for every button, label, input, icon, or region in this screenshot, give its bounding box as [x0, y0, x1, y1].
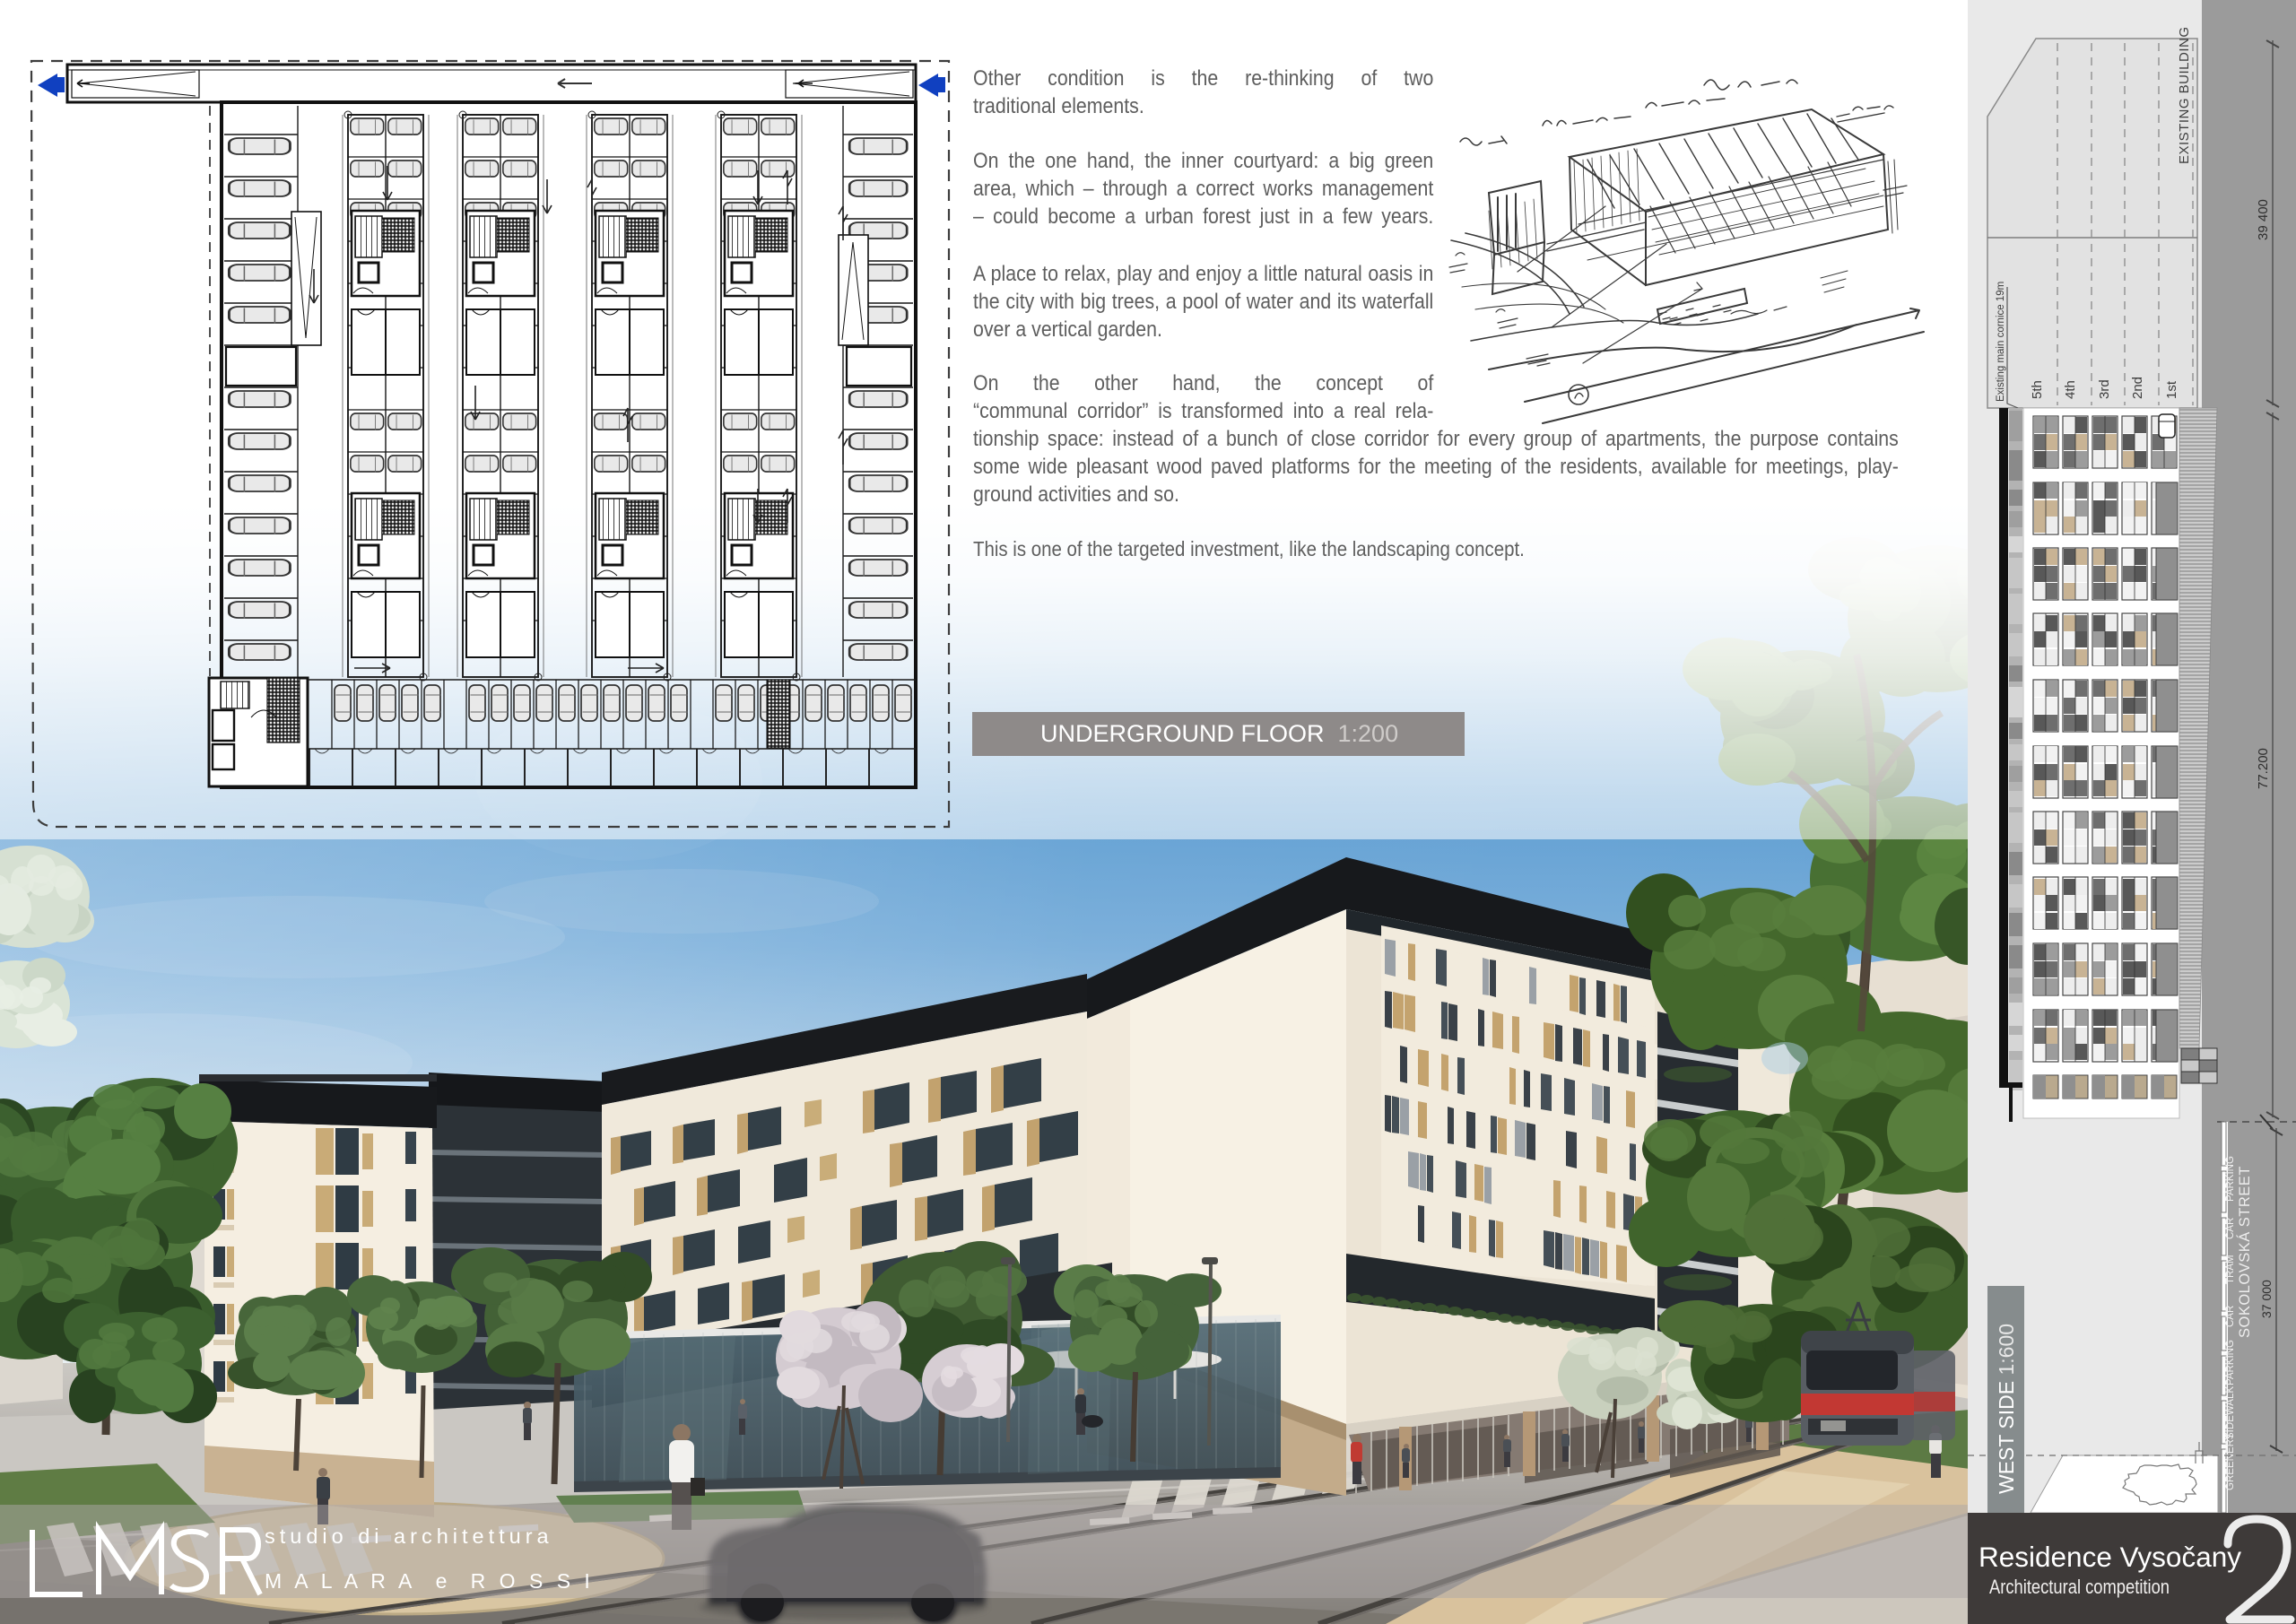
svg-text:Architectural competition: Architectural competition — [1989, 1576, 2170, 1598]
svg-text:3rd: 3rd — [2097, 379, 2112, 399]
svg-text:77.200: 77.200 — [2256, 748, 2271, 789]
svg-text:WEST SIDE 1:600: WEST SIDE 1:600 — [1995, 1324, 2018, 1494]
svg-text:studio di architettura: studio di architettura — [265, 1524, 553, 1548]
svg-text:SOKOLOVSKÁ STREET: SOKOLOVSKÁ STREET — [2236, 1166, 2253, 1338]
svg-text:GREENERY: GREENERY — [2225, 1432, 2236, 1490]
svg-text:1st: 1st — [2164, 380, 2179, 399]
svg-text:CAR: CAR — [2225, 1306, 2236, 1327]
svg-text:Existing main cornice 19m: Existing main cornice 19m — [1996, 282, 2006, 402]
svg-text:4th: 4th — [2063, 380, 2078, 399]
svg-text:37 000: 37 000 — [2259, 1280, 2274, 1318]
svg-text:PARKING: PARKING — [2225, 1156, 2236, 1202]
svg-text:2nd: 2nd — [2130, 377, 2145, 399]
svg-text:EXISTING BUILDING: EXISTING BUILDING — [2177, 26, 2192, 164]
svg-text:Residence Vysočany: Residence Vysočany — [1979, 1541, 2241, 1573]
svg-text:5th: 5th — [2030, 380, 2045, 399]
svg-text:SIDEWALK: SIDEWALK — [2225, 1386, 2236, 1439]
svg-text:39 400: 39 400 — [2256, 199, 2271, 240]
svg-text:CAR: CAR — [2225, 1218, 2236, 1239]
svg-text:TRAM: TRAM — [2225, 1255, 2236, 1284]
svg-text:M A L A R A e R O S S I: M A L A R A e R O S S I — [265, 1569, 594, 1593]
svg-text:PARKING: PARKING — [2225, 1340, 2236, 1385]
